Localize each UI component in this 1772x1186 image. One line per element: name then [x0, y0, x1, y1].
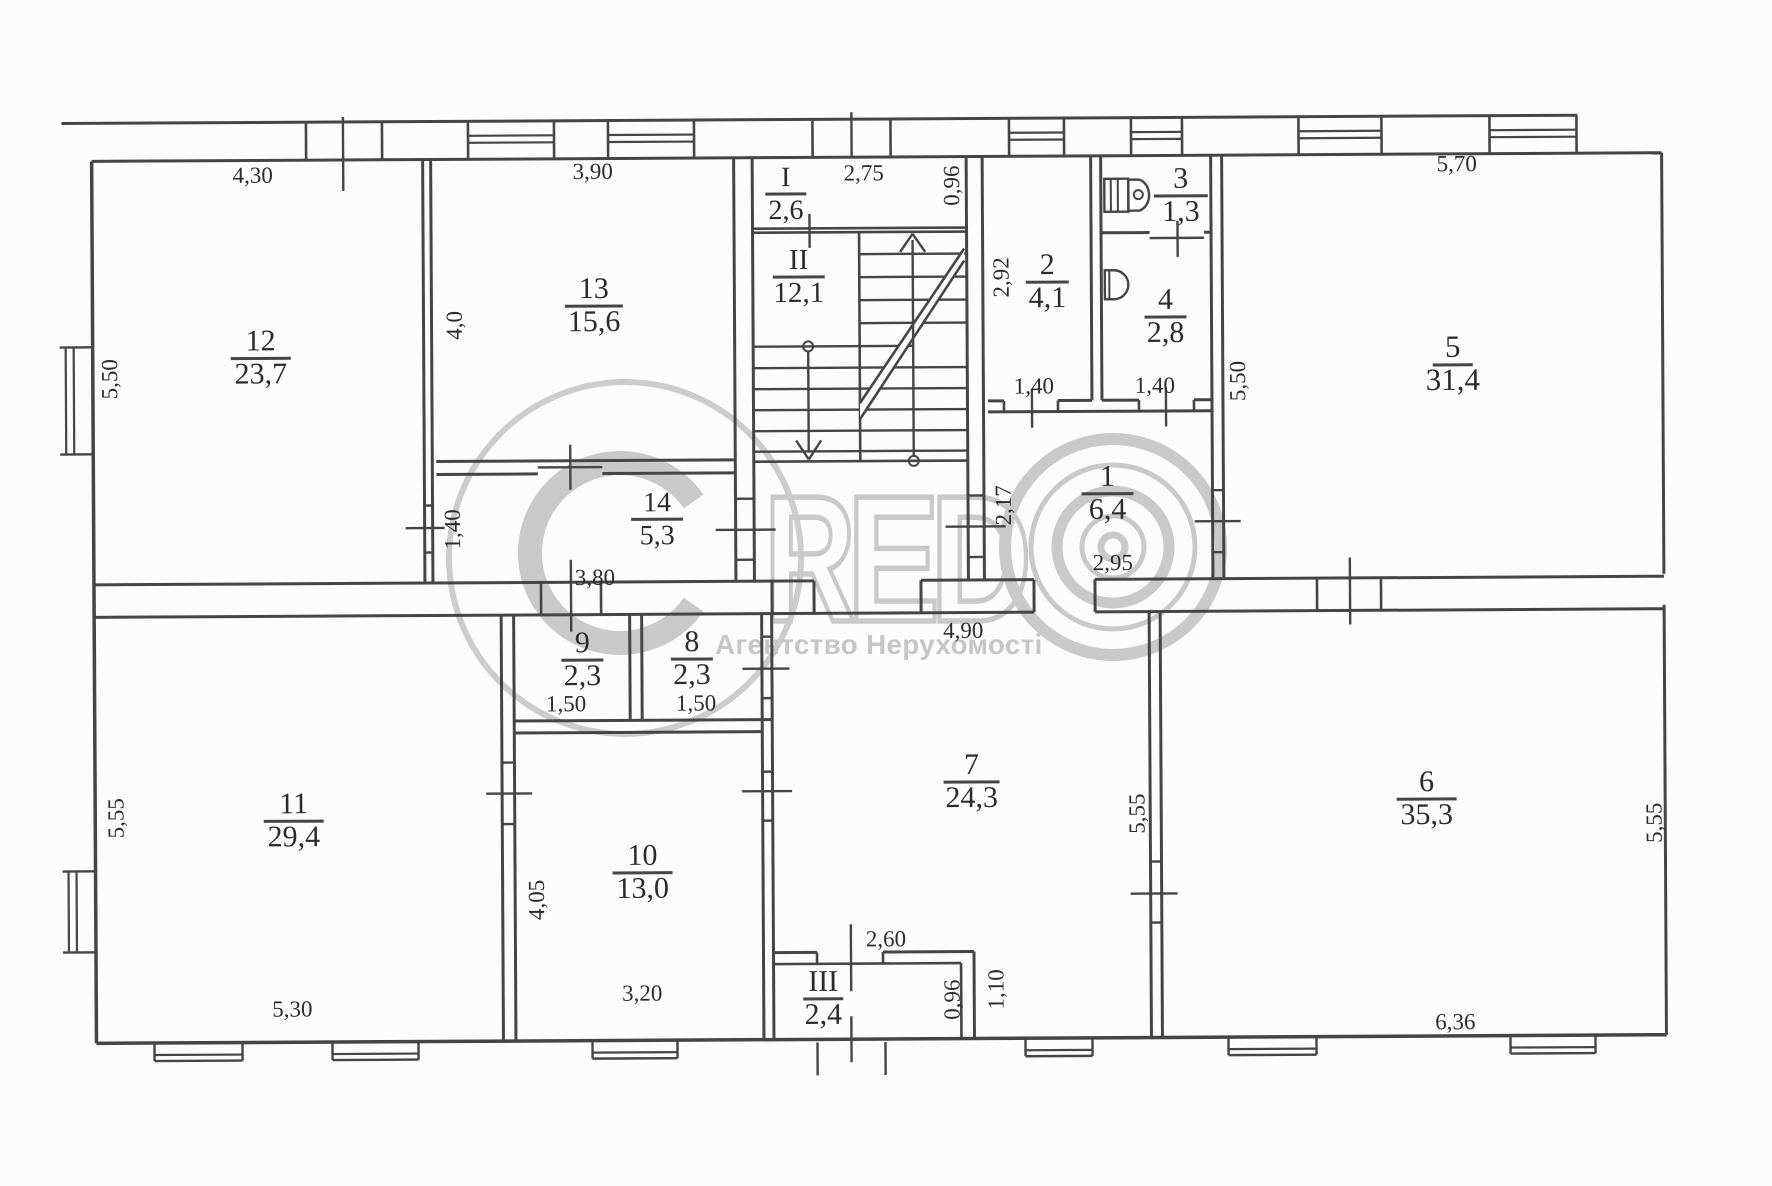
- svg-text:2,60: 2,60: [866, 926, 906, 951]
- svg-text:12: 12: [246, 324, 276, 357]
- svg-text:1,50: 1,50: [676, 690, 716, 715]
- svg-text:0,96: 0,96: [939, 165, 964, 205]
- svg-text:2,95: 2,95: [1093, 550, 1133, 575]
- svg-text:I: I: [781, 162, 790, 193]
- svg-text:5,55: 5,55: [1124, 793, 1149, 833]
- svg-text:5: 5: [1445, 329, 1461, 364]
- svg-text:1,3: 1,3: [1162, 195, 1200, 228]
- svg-text:5,70: 5,70: [1436, 151, 1476, 176]
- svg-text:15,6: 15,6: [568, 305, 621, 338]
- svg-text:Агентство Нерухомості: Агентство Нерухомості: [715, 629, 1043, 660]
- svg-text:5,55: 5,55: [103, 798, 128, 838]
- svg-text:23,7: 23,7: [234, 357, 287, 390]
- svg-text:3: 3: [1173, 162, 1188, 195]
- svg-text:24,3: 24,3: [945, 781, 998, 814]
- svg-text:2: 2: [1040, 248, 1055, 281]
- svg-text:12,1: 12,1: [773, 277, 824, 309]
- svg-text:5,3: 5,3: [640, 520, 675, 551]
- svg-text:4,30: 4,30: [233, 163, 273, 188]
- svg-text:2,92: 2,92: [988, 257, 1013, 297]
- svg-text:3,80: 3,80: [575, 565, 615, 590]
- svg-text:1,10: 1,10: [983, 969, 1008, 1009]
- svg-text:2,3: 2,3: [673, 658, 711, 691]
- svg-text:9: 9: [575, 626, 590, 659]
- svg-text:6: 6: [1419, 765, 1434, 798]
- svg-text:31,4: 31,4: [1426, 362, 1481, 397]
- svg-text:5,55: 5,55: [1641, 803, 1666, 843]
- svg-text:13,0: 13,0: [616, 872, 669, 905]
- svg-text:10: 10: [627, 839, 657, 872]
- svg-text:13: 13: [579, 272, 609, 305]
- svg-text:14: 14: [643, 487, 671, 518]
- svg-text:4,05: 4,05: [524, 880, 549, 920]
- svg-text:3,20: 3,20: [622, 981, 662, 1006]
- svg-text:1,50: 1,50: [546, 691, 586, 716]
- svg-text:4,0: 4,0: [442, 311, 467, 340]
- svg-text:1,40: 1,40: [440, 509, 465, 549]
- svg-text:2,8: 2,8: [1147, 316, 1185, 349]
- svg-text:35,3: 35,3: [1400, 798, 1453, 831]
- svg-text:5,50: 5,50: [97, 359, 122, 399]
- svg-text:1,40: 1,40: [1014, 373, 1054, 398]
- svg-text:29,4: 29,4: [268, 820, 321, 853]
- svg-text:6,4: 6,4: [1089, 493, 1127, 526]
- svg-text:2,75: 2,75: [844, 160, 884, 185]
- svg-text:11: 11: [279, 787, 308, 820]
- svg-text:5,50: 5,50: [1225, 361, 1250, 401]
- svg-text:2,17: 2,17: [991, 485, 1016, 525]
- svg-text:8: 8: [684, 625, 699, 658]
- svg-text:4,90: 4,90: [943, 618, 983, 643]
- svg-text:7: 7: [964, 748, 979, 781]
- svg-text:4: 4: [1158, 283, 1173, 316]
- svg-text:2,3: 2,3: [564, 659, 602, 692]
- svg-text:1,40: 1,40: [1135, 373, 1175, 398]
- svg-text:3,90: 3,90: [573, 159, 613, 184]
- svg-text:III: III: [808, 965, 838, 998]
- svg-text:1: 1: [1100, 460, 1115, 493]
- svg-text:4,1: 4,1: [1029, 281, 1067, 314]
- svg-text:2,6: 2,6: [768, 195, 803, 226]
- svg-text:2,4: 2,4: [804, 998, 842, 1031]
- svg-text:6,36: 6,36: [1435, 1009, 1475, 1034]
- svg-text:0,96: 0,96: [939, 979, 964, 1019]
- svg-text:5,30: 5,30: [272, 996, 312, 1021]
- svg-text:II: II: [789, 244, 809, 276]
